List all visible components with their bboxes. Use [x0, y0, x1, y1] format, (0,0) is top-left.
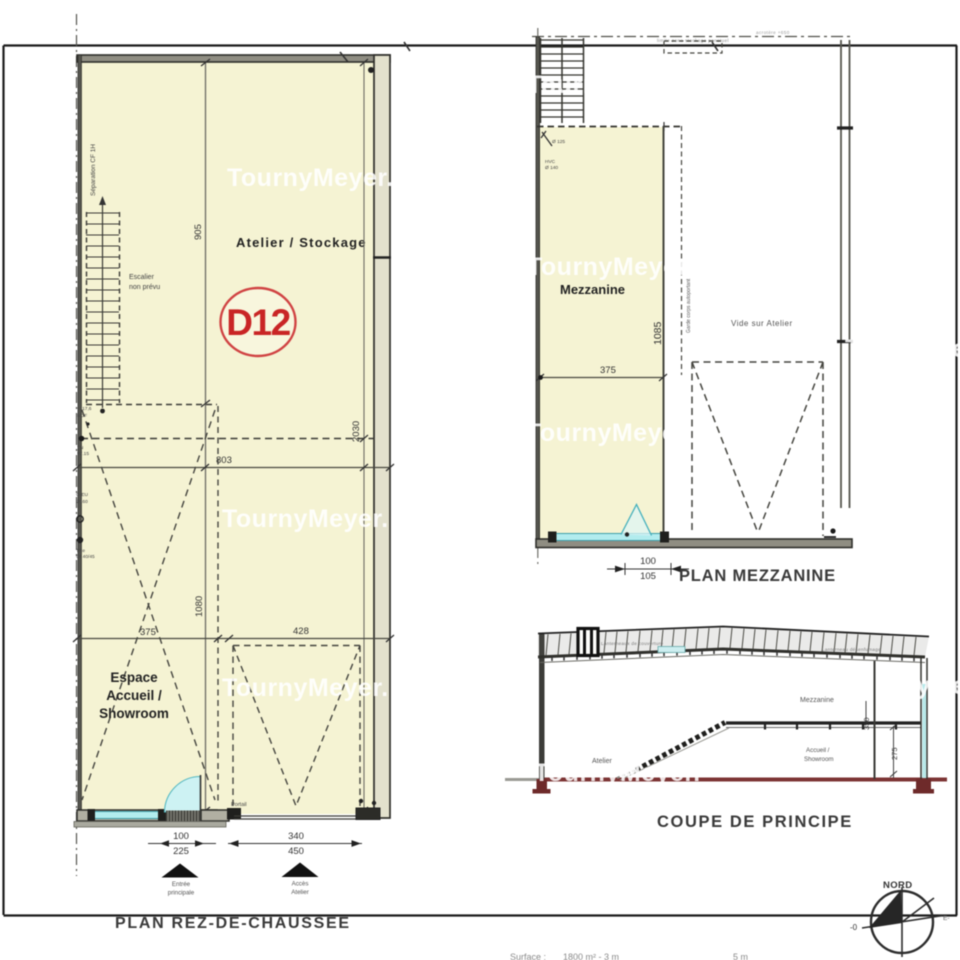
- svg-text:TournyMeyer.: TournyMeyer.: [527, 71, 694, 99]
- svg-text:225: 225: [173, 846, 189, 857]
- svg-text:Accueil /: Accueil /: [106, 688, 162, 703]
- svg-text:NORD: NORD: [883, 880, 913, 891]
- svg-text:Mezzanine: Mezzanine: [800, 697, 834, 704]
- svg-text:Escalier: Escalier: [129, 274, 155, 281]
- svg-text:TournyMeyer.: TournyMeyer.: [845, 335, 960, 363]
- svg-text:1800 m² - 3 m: 1800 m² - 3 m: [563, 952, 619, 960]
- svg-text:Atelier: Atelier: [291, 889, 309, 896]
- svg-text:Mezzanine: Mezzanine: [560, 282, 625, 297]
- svg-text:375: 375: [600, 365, 616, 376]
- svg-text:HVC: HVC: [545, 159, 556, 165]
- svg-text:Vide sur Atelier: Vide sur Atelier: [731, 319, 793, 328]
- svg-text:105: 105: [640, 571, 656, 582]
- svg-text:1085: 1085: [652, 321, 664, 345]
- svg-text:1080: 1080: [194, 596, 205, 617]
- svg-text:TRe: TRe: [76, 548, 85, 554]
- svg-text:375: 375: [140, 627, 156, 638]
- svg-text:TournyMeyer.: TournyMeyer.: [222, 505, 389, 533]
- svg-text:TournyMeyer.: TournyMeyer.: [845, 672, 960, 700]
- svg-text:Accueil /: Accueil /: [806, 747, 830, 754]
- svg-text:275: 275: [890, 747, 899, 760]
- svg-text:TournyMeyer.: TournyMeyer.: [526, 419, 693, 447]
- svg-text:Espace: Espace: [110, 670, 158, 685]
- svg-text:Séparation CF 1H: Séparation CF 1H: [90, 144, 97, 196]
- svg-text:Accès: Accès: [292, 881, 309, 888]
- svg-text:TournyMeyer.: TournyMeyer.: [222, 674, 389, 702]
- svg-text:100: 100: [640, 556, 656, 567]
- svg-text:Showroom: Showroom: [804, 756, 834, 763]
- svg-text:340: 340: [288, 831, 304, 842]
- svg-text:Portail: Portail: [231, 802, 247, 808]
- svg-text:Atelier / Stockage: Atelier / Stockage: [236, 235, 367, 250]
- svg-text:Ø160: Ø160: [76, 499, 88, 505]
- svg-text:NGF: NGF: [77, 413, 87, 419]
- svg-text:350: 350: [862, 717, 871, 730]
- svg-text:Lanterneaux de couverture: Lanterneaux de couverture: [601, 641, 664, 646]
- svg-text:905: 905: [193, 224, 204, 240]
- svg-text:non prévu: non prévu: [129, 284, 160, 291]
- svg-text:Ø 125: Ø 125: [552, 139, 565, 145]
- svg-text:TournyMeyer.: TournyMeyer.: [227, 164, 394, 192]
- svg-text:97.15: 97.15: [77, 451, 89, 457]
- svg-text:Entrée: Entrée: [172, 881, 191, 888]
- svg-text:Showroom: Showroom: [99, 706, 169, 721]
- svg-text:PLAN REZ-DE-CHAUSSEE: PLAN REZ-DE-CHAUSSEE: [115, 915, 351, 932]
- svg-text:+117,6: +117,6: [77, 406, 92, 412]
- svg-text:450: 450: [288, 846, 304, 857]
- svg-text:D12: D12: [226, 302, 290, 343]
- svg-text:428: 428: [293, 626, 309, 637]
- svg-text:principale: principale: [168, 890, 195, 897]
- svg-text:98 40/45: 98 40/45: [76, 554, 95, 560]
- svg-text:Surface :: Surface :: [510, 952, 546, 960]
- svg-text:E-: E-: [943, 915, 950, 922]
- svg-text:Ø 140: Ø 140: [545, 165, 558, 171]
- svg-text:TN: TN: [77, 445, 84, 451]
- svg-text:PLAN MEZZANINE: PLAN MEZZANINE: [679, 567, 836, 585]
- svg-text:TournyMeyer.: TournyMeyer.: [534, 759, 701, 787]
- svg-text:O-EU: O-EU: [76, 492, 89, 498]
- svg-text:acrotère +650: acrotère +650: [756, 30, 790, 35]
- svg-text:Lanterneau désenfumage: Lanterneau désenfumage: [822, 647, 881, 652]
- svg-text:-0: -0: [850, 923, 858, 932]
- svg-text:TournyMeyer.: TournyMeyer.: [527, 253, 694, 281]
- svg-text:5 m: 5 m: [733, 952, 748, 960]
- svg-text:100: 100: [173, 831, 189, 842]
- svg-text:Garde corps autoportant: Garde corps autoportant: [686, 278, 692, 333]
- svg-text:COUPE DE PRINCIPE: COUPE DE PRINCIPE: [657, 813, 853, 831]
